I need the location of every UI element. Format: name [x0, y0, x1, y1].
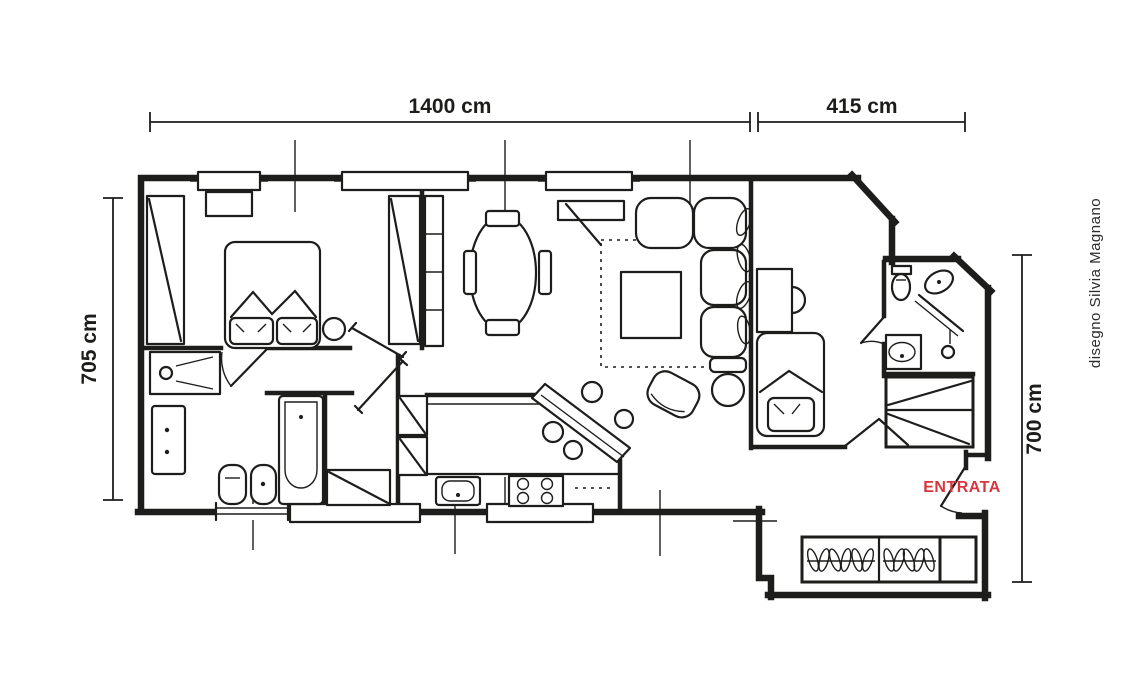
pillow [768, 398, 814, 431]
sofa-cushion [701, 307, 746, 357]
stool [564, 441, 582, 459]
dim-label-left: 705 cm [78, 313, 101, 384]
window-icon [546, 172, 632, 190]
dim-label-top-right: 415 cm [826, 95, 897, 118]
pillow [230, 318, 273, 344]
washbasin-counter [886, 335, 921, 369]
entrance-door-arc [941, 506, 962, 513]
chair [464, 251, 476, 294]
hanger-icon [860, 548, 875, 572]
hanger-icon [805, 548, 820, 572]
hanger-icon [850, 548, 864, 572]
hanger-icon [827, 548, 843, 572]
credit-text: disegno Silvia Magnano [1087, 198, 1104, 368]
dim-label-right: 700 cm [1023, 383, 1046, 454]
bedside-table [323, 318, 345, 340]
sofa-cushion [636, 198, 693, 248]
side-table [712, 374, 744, 406]
sofa-armrest [710, 358, 746, 372]
floor-plan-canvas: 1400 cm 415 cm 705 cm 700 cm disegno Sil… [0, 0, 1140, 680]
stool [543, 422, 563, 442]
master-bedroom [147, 192, 420, 360]
shower-screen [919, 295, 963, 331]
dining-table [470, 216, 536, 330]
dining-area [425, 196, 551, 346]
radiator [558, 201, 624, 220]
entrance-hall: ENTRATA [802, 464, 1001, 582]
floor-plan-svg: 1400 cm 415 cm 705 cm 700 cm disegno Sil… [0, 0, 1140, 680]
hall-closet [802, 537, 940, 582]
door-leaf [845, 419, 908, 446]
hanger-icon [922, 548, 936, 572]
hall-cabinet [940, 537, 976, 582]
door-swing-arc [861, 341, 884, 344]
shower-drain [942, 346, 954, 358]
desk [757, 269, 792, 332]
chair [539, 251, 551, 294]
walls [138, 175, 991, 598]
entrance-label: ENTRATA [923, 479, 1001, 496]
door-leaf [861, 317, 884, 343]
toilet [219, 465, 246, 504]
hanger-icon [840, 548, 853, 572]
toilet-tank [892, 266, 911, 274]
window-icon [342, 172, 468, 190]
desk-chair [792, 287, 805, 313]
main-bathroom [150, 350, 407, 505]
sofa-cushion [694, 198, 746, 248]
chair [486, 320, 519, 335]
entrance-step-wall [966, 452, 988, 468]
coffee-table [621, 272, 681, 338]
stove [509, 476, 563, 506]
door-swing-arc [222, 352, 231, 386]
stool [615, 410, 633, 428]
toilet [892, 274, 910, 300]
sideboard [425, 196, 443, 346]
dim-label-top-main: 1400 cm [409, 95, 492, 118]
basin [921, 266, 957, 298]
window-icon [198, 172, 260, 190]
kitchen [398, 382, 633, 506]
stool [582, 382, 602, 402]
armchair [643, 367, 704, 422]
sofa-cushion [701, 250, 746, 305]
chair [486, 211, 519, 226]
vanity [152, 406, 185, 474]
dim-line-left [103, 198, 123, 500]
radiator [206, 192, 252, 216]
window-icon [290, 504, 420, 522]
pillow [277, 318, 317, 344]
